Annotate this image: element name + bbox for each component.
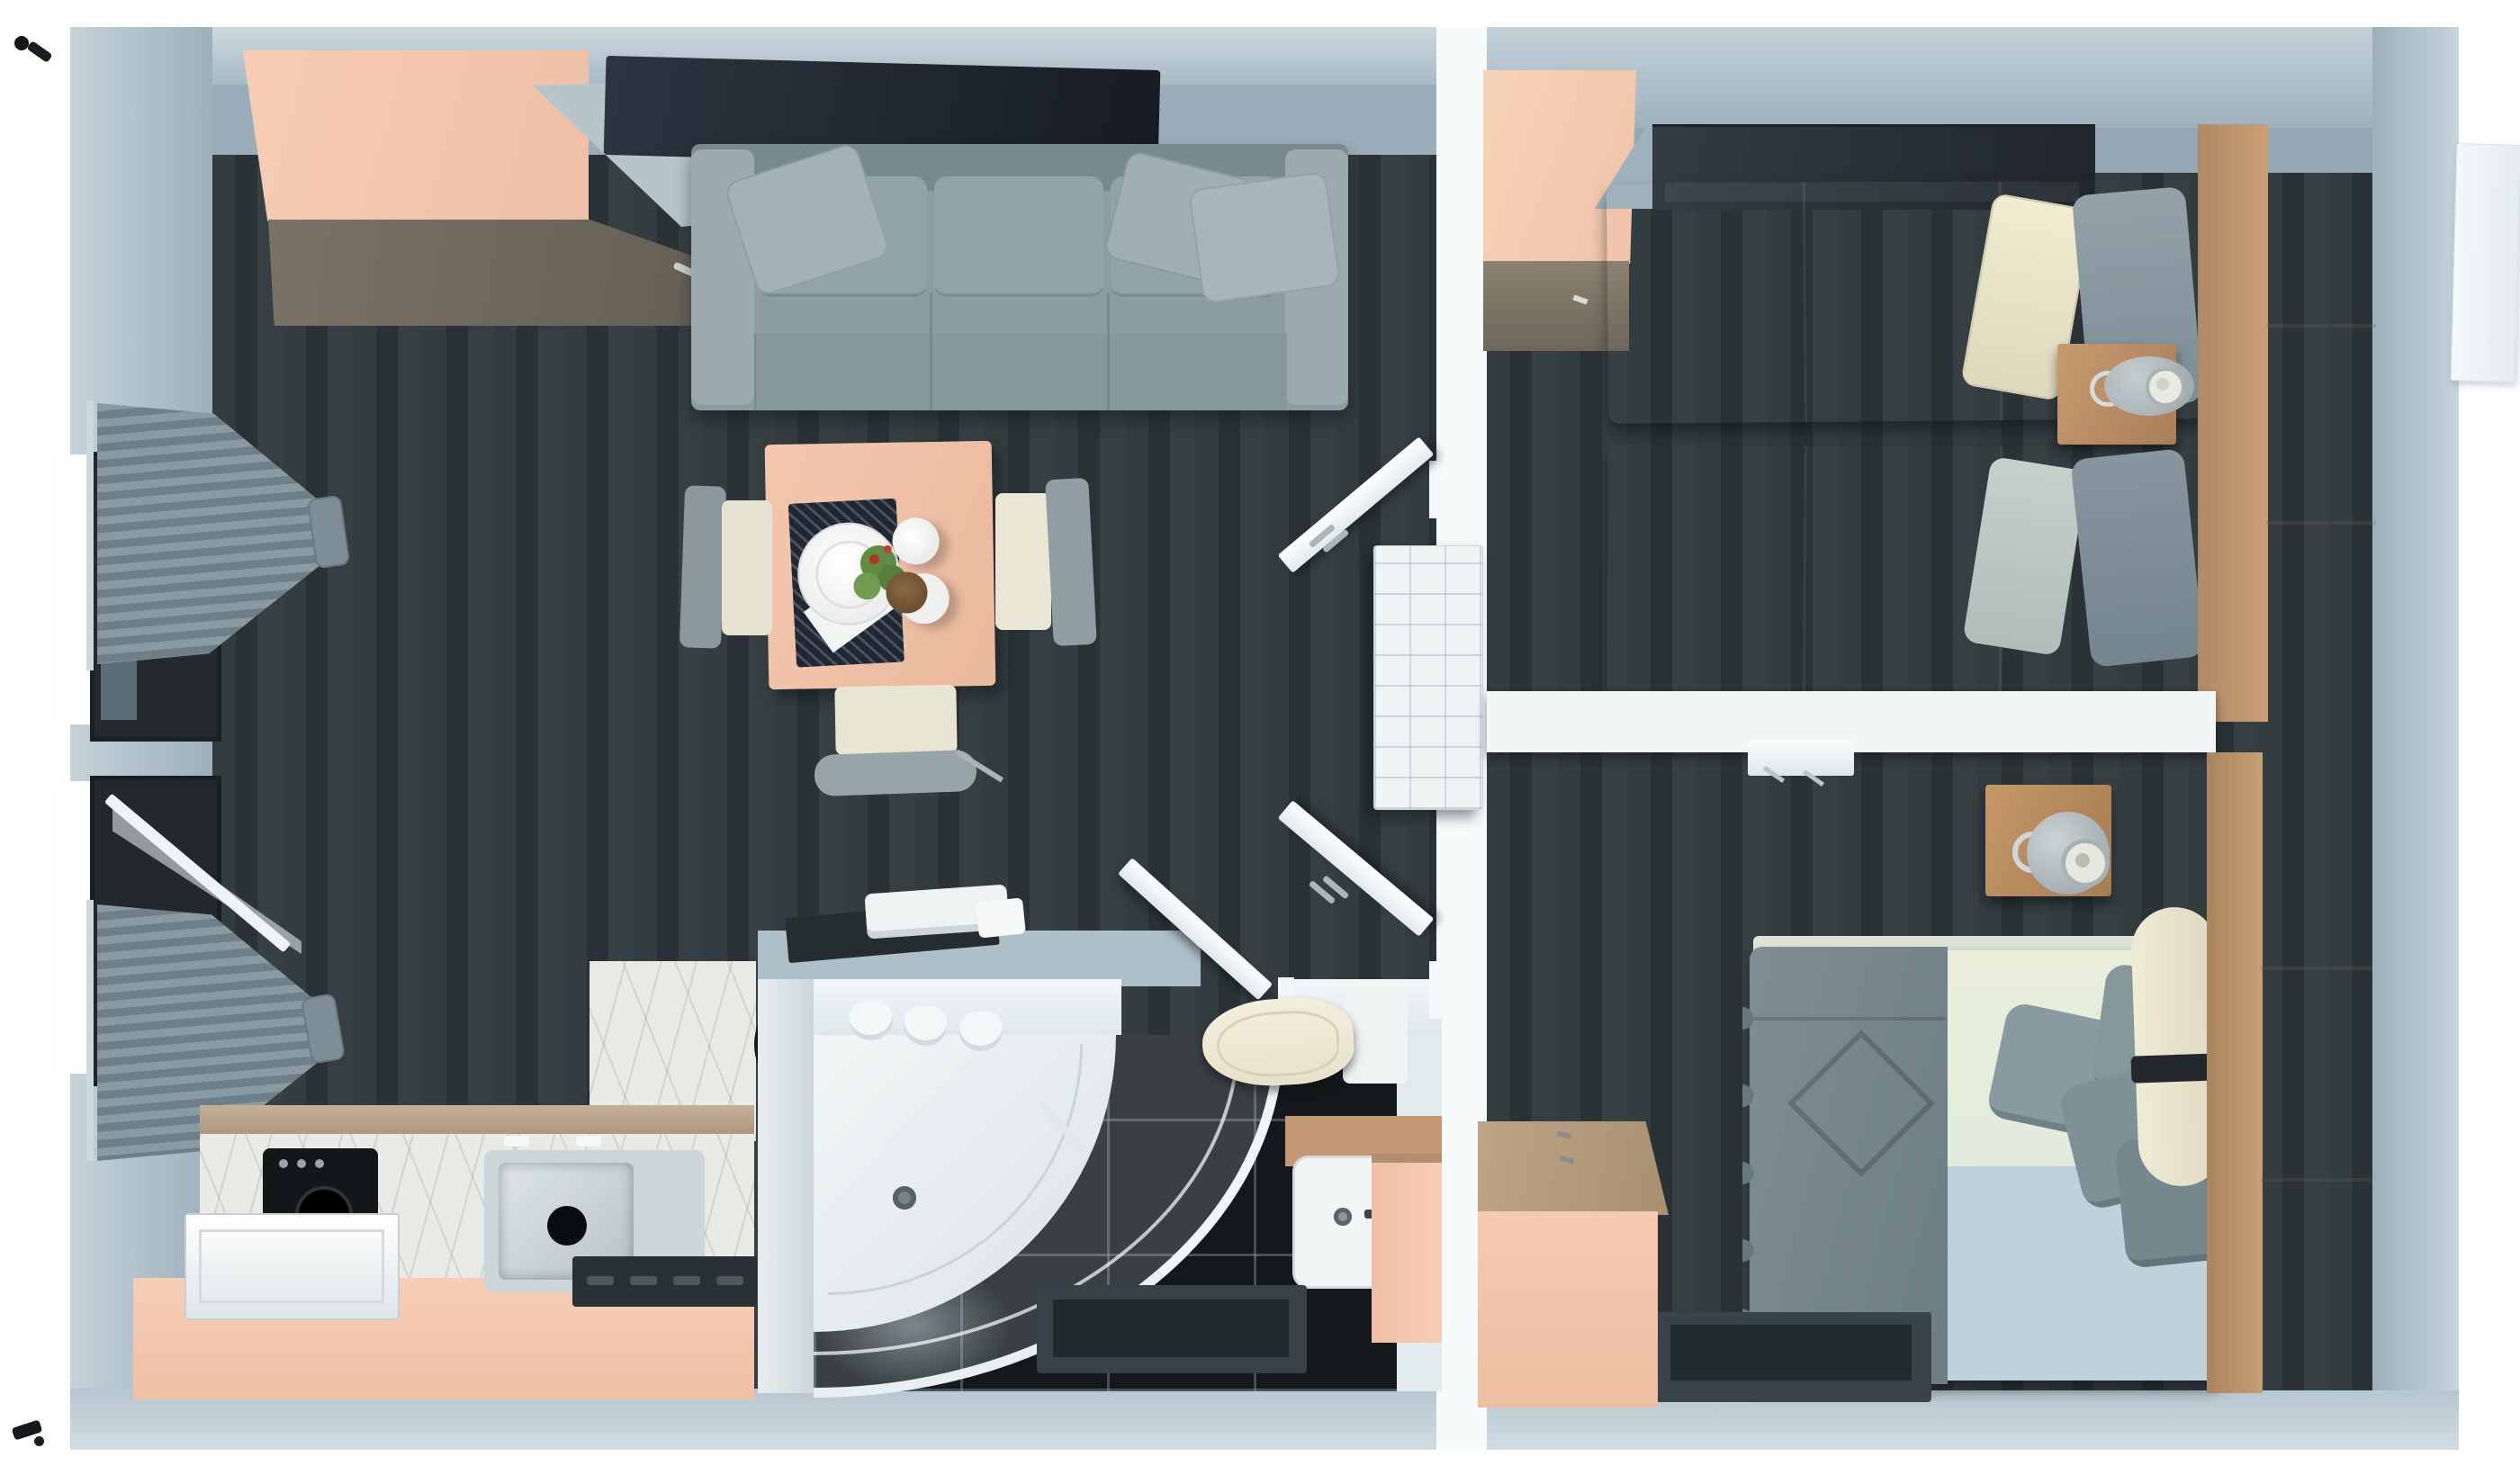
throw-ruffle	[1742, 972, 1757, 1359]
throw-seam	[1753, 1017, 1946, 1021]
bedroom-double	[0, 0, 2520, 1475]
double-lamp-bulb	[2075, 853, 2090, 868]
double-tall-wardrobe-side	[2207, 752, 2263, 1393]
loose-panel-outside	[2451, 143, 2520, 382]
rug-inner	[1670, 1325, 1912, 1381]
double-tall-wardrobe-face	[2261, 752, 2372, 1393]
corner-mark-bottom-left	[34, 1436, 44, 1446]
floorplan-canvas	[0, 0, 2520, 1475]
dresser-front	[1478, 1211, 1658, 1408]
dresser-top	[1478, 1121, 1669, 1215]
